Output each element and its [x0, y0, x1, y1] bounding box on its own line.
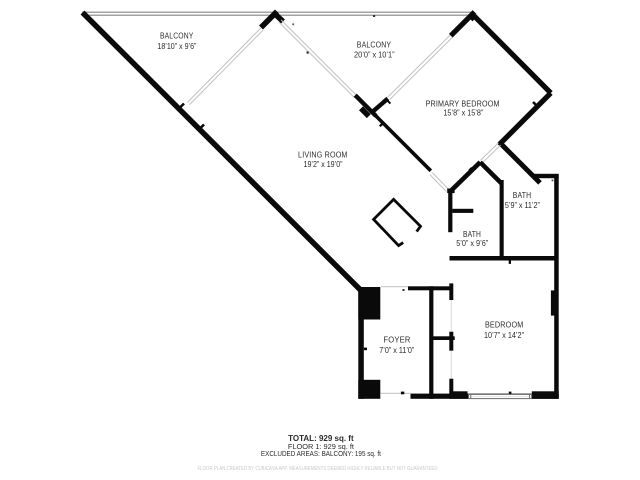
- svg-text:18’10” x 9’6”: 18’10” x 9’6”: [157, 42, 196, 51]
- svg-text:FOYER: FOYER: [384, 334, 411, 344]
- svg-text:19’2” x 19’0”: 19’2” x 19’0”: [304, 160, 343, 169]
- svg-text:BATH: BATH: [513, 190, 532, 200]
- svg-text:EXCLUDED AREAS: BALCONY: 195 s: EXCLUDED AREAS: BALCONY: 195 sq. ft: [261, 449, 381, 458]
- svg-text:5’0” x 9’6”: 5’0” x 9’6”: [456, 239, 488, 248]
- svg-text:BALCONY: BALCONY: [357, 40, 392, 50]
- svg-text:LIVING ROOM: LIVING ROOM: [298, 149, 348, 159]
- svg-text:BEDROOM: BEDROOM: [485, 319, 524, 329]
- svg-text:7’0” x 11’0”: 7’0” x 11’0”: [379, 346, 414, 355]
- svg-text:FLOOR PLAN CREATED BY CUBICASA: FLOOR PLAN CREATED BY CUBICASA APP. MEAS…: [198, 466, 438, 472]
- svg-text:5’9” x 11’2”: 5’9” x 11’2”: [505, 201, 540, 210]
- svg-text:PRIMARY BEDROOM: PRIMARY BEDROOM: [426, 98, 500, 108]
- svg-text:10’7” x 14’2”: 10’7” x 14’2”: [484, 331, 524, 340]
- svg-text:20’0” x 10’1”: 20’0” x 10’1”: [354, 51, 395, 60]
- svg-text:15’8” x 15’8”: 15’8” x 15’8”: [443, 109, 483, 118]
- svg-text:BALCONY: BALCONY: [160, 30, 194, 40]
- svg-text:BATH: BATH: [463, 229, 481, 239]
